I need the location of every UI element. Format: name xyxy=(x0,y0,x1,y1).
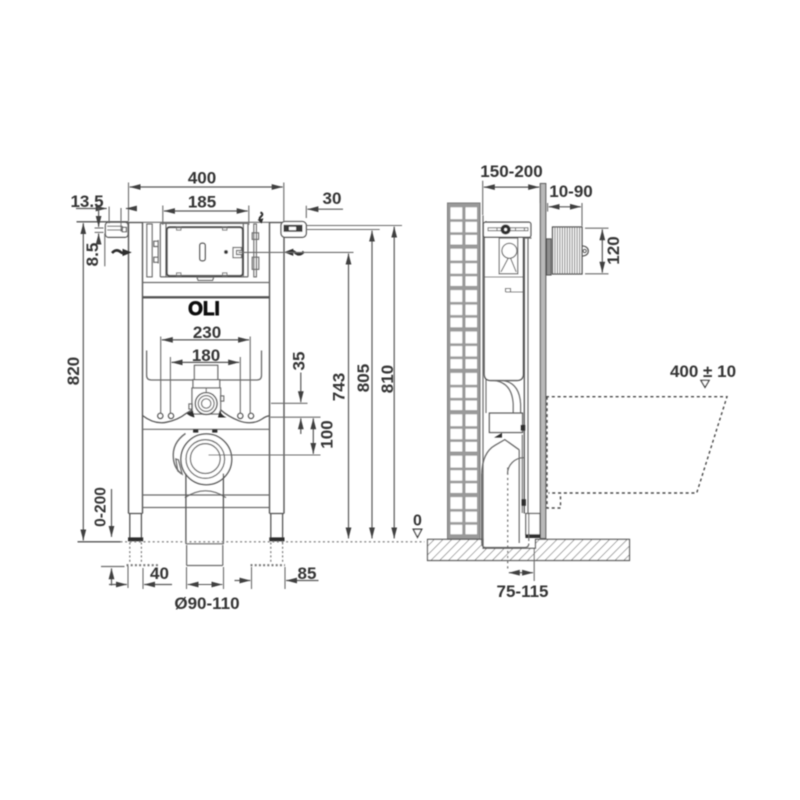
svg-text:100: 100 xyxy=(318,420,337,448)
svg-text:35: 35 xyxy=(290,352,309,371)
svg-text:10-90: 10-90 xyxy=(549,182,592,201)
svg-text:40: 40 xyxy=(150,564,169,583)
svg-text:185: 185 xyxy=(188,193,216,212)
svg-text:805: 805 xyxy=(354,364,373,392)
svg-text:400 ± 10: 400 ± 10 xyxy=(670,362,736,381)
svg-text:30: 30 xyxy=(323,189,342,208)
svg-text:75-115: 75-115 xyxy=(497,582,549,601)
svg-text:230: 230 xyxy=(193,323,221,342)
svg-text:0-200: 0-200 xyxy=(92,487,109,527)
svg-text:8.5: 8.5 xyxy=(83,243,102,267)
svg-text:Ø90-110: Ø90-110 xyxy=(174,594,239,613)
svg-text:400: 400 xyxy=(188,169,216,188)
svg-text:120: 120 xyxy=(604,236,623,264)
svg-text:743: 743 xyxy=(330,373,349,401)
svg-text:OLI: OLI xyxy=(188,299,220,320)
svg-text:820: 820 xyxy=(64,357,83,385)
svg-text:150-200: 150-200 xyxy=(480,162,542,181)
svg-text:0: 0 xyxy=(413,513,422,530)
